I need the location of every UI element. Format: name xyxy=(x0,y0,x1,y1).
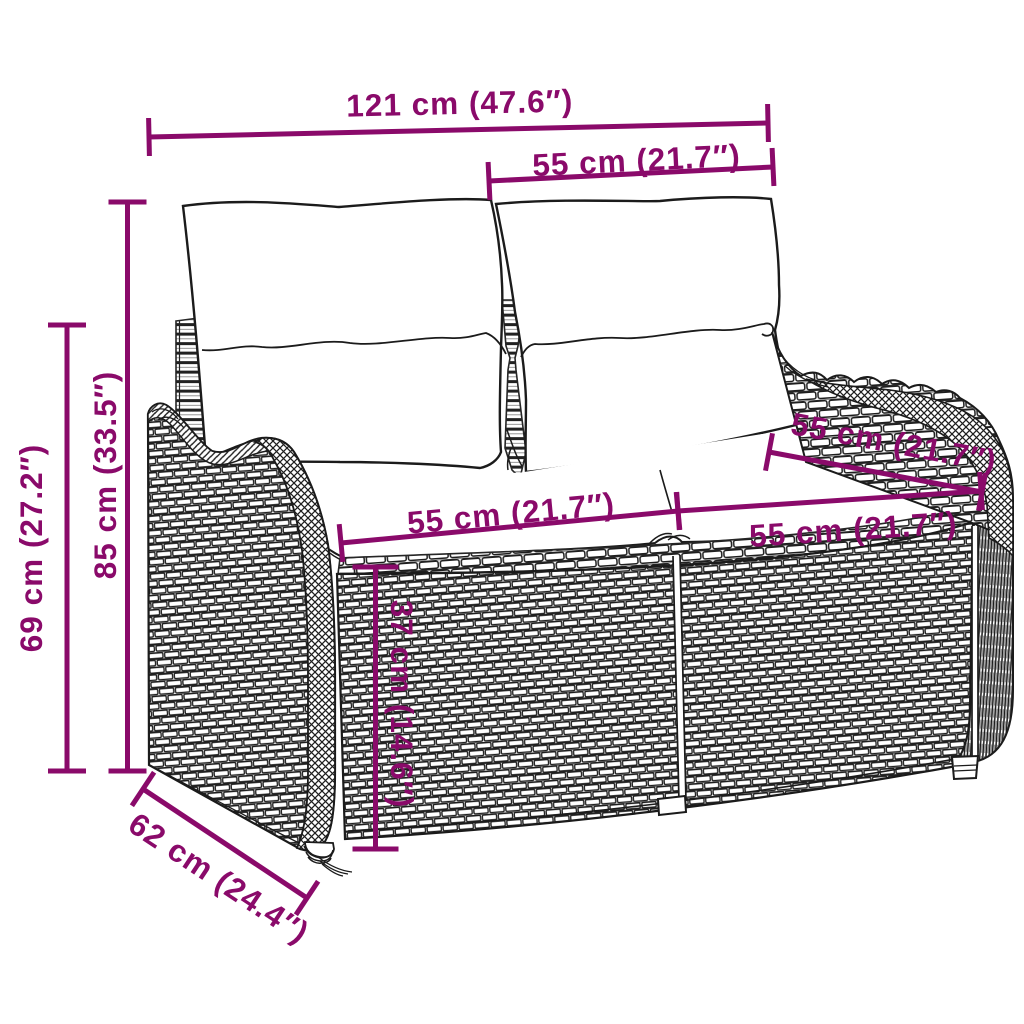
svg-text:37 cm (14.6″): 37 cm (14.6″) xyxy=(384,600,420,808)
svg-text:85 cm (33.5″): 85 cm (33.5″) xyxy=(87,371,123,579)
svg-text:69 cm (27.2″): 69 cm (27.2″) xyxy=(13,444,49,652)
svg-text:121 cm (47.6″): 121 cm (47.6″) xyxy=(346,82,574,123)
